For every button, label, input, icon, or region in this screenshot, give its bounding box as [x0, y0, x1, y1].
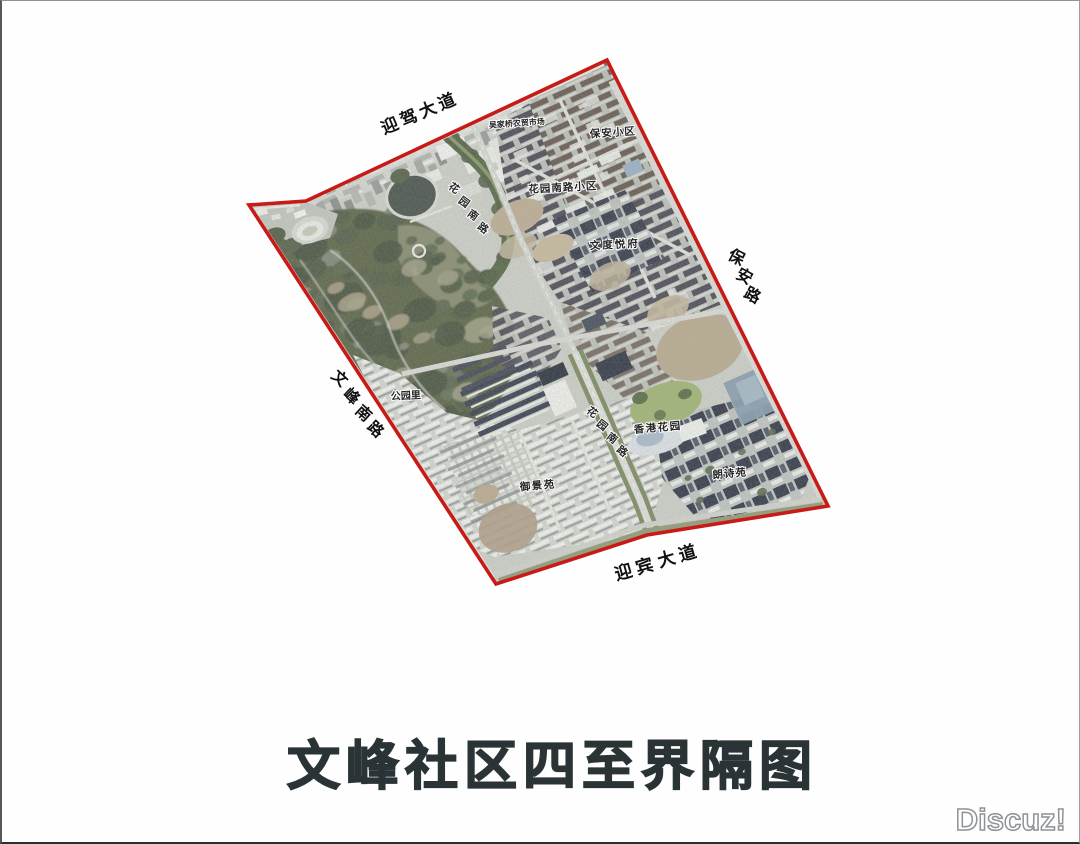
svg-text:大: 大: [655, 547, 678, 571]
svg-text:道: 道: [435, 89, 458, 114]
svg-text:迎: 迎: [378, 113, 401, 138]
svg-text:大: 大: [416, 97, 439, 122]
svg-text:文度悦府: 文度悦府: [589, 237, 641, 253]
svg-text:保: 保: [724, 245, 749, 270]
svg-text:公园里: 公园里: [391, 389, 422, 403]
svg-text:迎: 迎: [612, 560, 635, 584]
svg-text:驾: 驾: [397, 106, 420, 130]
svg-text:宾: 宾: [633, 554, 655, 578]
svg-text:道: 道: [676, 541, 699, 565]
